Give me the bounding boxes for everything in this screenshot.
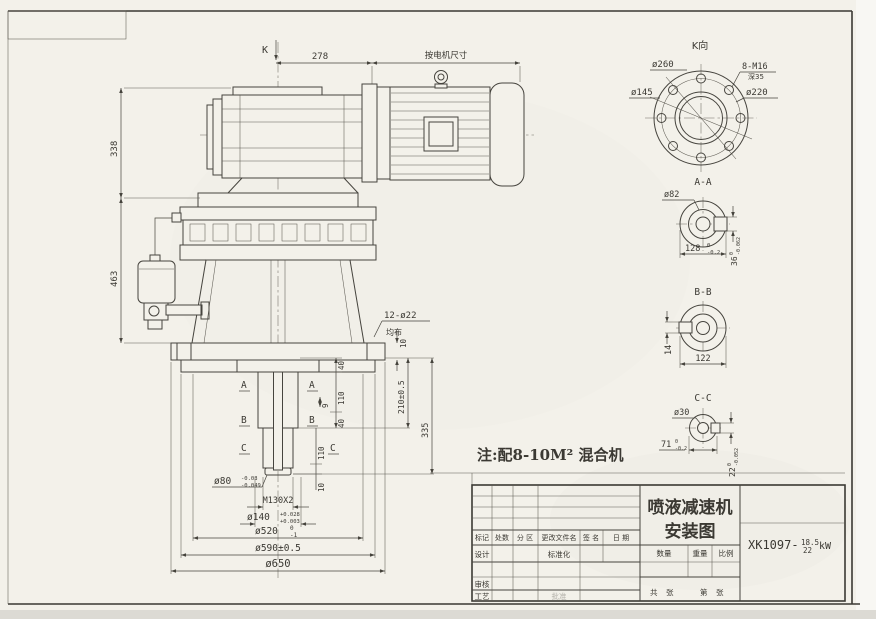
bb-keyway — [679, 322, 692, 333]
k-bolt-spec: 8-M16 — [742, 62, 768, 72]
chain-9: 9 — [321, 403, 330, 408]
motor-flange — [377, 87, 390, 179]
aa-title: A-A — [694, 177, 711, 188]
k-dia-bolt-circle: ø220 — [746, 88, 768, 98]
weight-label: 重量 — [693, 549, 708, 558]
coupling-flange — [362, 84, 377, 182]
cc-key-tol-lo: -0.052 — [734, 448, 740, 466]
aa-key-tol-hi: 0 — [729, 252, 735, 255]
chain-110a: 110 — [337, 391, 346, 405]
cc-title: C-C — [694, 393, 711, 404]
section-a-right: A — [309, 380, 315, 391]
aa-width: 128 — [685, 244, 700, 254]
q​ty-label: 数量 — [657, 548, 672, 558]
sheets-b-label: 张 — [716, 588, 724, 597]
col-sign: 签 名 — [583, 533, 599, 542]
section-a-left: A — [241, 380, 247, 391]
drawing-svg: K 278 按电机尺寸 — [0, 0, 876, 619]
cc-width-tol-hi: 0 — [675, 439, 678, 445]
view-k-title: K向 — [692, 39, 709, 52]
k-bolt-depth: 深35 — [748, 72, 764, 81]
holes-spec: 12-ø22 — [384, 311, 417, 321]
shaft-dia: ø80 — [214, 476, 231, 487]
cc-key-tol-hi: 0 — [727, 463, 733, 466]
aa-keyway — [714, 217, 727, 231]
drawing-title-line2: 安装图 — [665, 521, 716, 542]
support-arm — [166, 305, 202, 315]
dwg-no-denom: 22 — [803, 546, 812, 555]
section-b-right: B — [309, 415, 315, 426]
motor — [390, 71, 524, 187]
k-dia-pilot: ø145 — [631, 88, 653, 98]
col-date: 日 期 — [613, 534, 629, 542]
base-flange — [171, 343, 385, 372]
drawing-title-line1: 喷液减速机 — [648, 497, 733, 518]
k-dia-outer: ø260 — [652, 60, 674, 70]
dwg-no-unit: kW — [819, 541, 832, 552]
aa-key: 36 — [730, 256, 739, 266]
motor-end-cap — [490, 83, 524, 186]
eyebolt-icon — [435, 71, 448, 84]
dia-650: ø650 — [265, 558, 290, 570]
col-zone: 分 区 — [517, 533, 533, 542]
aa-width-tol-lo: -0.2 — [707, 250, 720, 256]
eyebolt-base — [435, 84, 447, 88]
section-b-left: B — [241, 415, 247, 426]
col-count: 处数 — [495, 533, 509, 542]
oil-pot — [138, 261, 175, 303]
row-check: 审核 — [475, 579, 490, 589]
gear-housing — [207, 87, 362, 178]
plate-thickness: 10 — [399, 338, 408, 348]
bore-dia: ø140 — [247, 512, 270, 523]
bb-width: 122 — [695, 354, 710, 364]
cc-width-tol-lo: -0.2 — [675, 446, 687, 452]
col-mark: 标记 — [475, 533, 489, 542]
dim-335: 335 — [421, 423, 431, 438]
aa-key-tol-lo: -0.062 — [736, 237, 742, 255]
dia-590: ø590±0.5 — [255, 543, 301, 554]
turntable-drum — [180, 207, 376, 260]
sheets-ordinal-label: 第 — [700, 587, 708, 597]
scale-label: 比例 — [719, 548, 734, 558]
shaft-collar — [237, 360, 319, 372]
drawing-note: 注:配8-10M² 混合机 — [477, 446, 623, 464]
section-c-right: C — [330, 443, 336, 454]
bb-key-width: 14 — [664, 345, 674, 355]
dim-463: 463 — [110, 271, 120, 287]
shaft-dia-tol-lo: -0.049 — [241, 483, 261, 489]
dim-278: 278 — [312, 52, 328, 62]
thread-spec: M130X2 — [263, 496, 294, 506]
sheets-a-label: 张 — [666, 588, 674, 597]
bore-tol-hi: +0.028 — [280, 512, 300, 518]
dim-338: 338 — [110, 141, 120, 157]
chain-110b: 110 — [317, 446, 326, 460]
chain-40a: 40 — [337, 360, 346, 370]
dim-210: 210±0.5 — [397, 380, 406, 414]
sheets-total-label: 共 — [650, 588, 658, 597]
cc-dia-bore: ø30 — [674, 408, 689, 418]
aa-width-tol-hi: 0 — [707, 243, 710, 249]
pipe-fitting — [172, 213, 181, 222]
dia-520: ø520 — [255, 526, 278, 537]
aa-dia-bore: ø82 — [664, 190, 679, 200]
col-file: 更改文件名 — [542, 533, 577, 542]
k-view-label: K — [262, 45, 268, 56]
dia-520-tol-lo: -1 — [290, 532, 298, 539]
section-c-left: C — [241, 443, 247, 454]
bb-title: B-B — [694, 287, 711, 298]
cc-keyway — [711, 423, 720, 433]
dwg-no-prefix: XK1097- — [748, 538, 799, 552]
cc-width: 71 — [661, 440, 671, 450]
row-approve: 批准 — [552, 591, 567, 601]
holes-layout: 均布 — [386, 327, 402, 337]
row-process: 工艺 — [475, 592, 490, 601]
motor-dim-note: 按电机尺寸 — [425, 50, 468, 61]
dia-520-tol-hi: 0 — [290, 525, 294, 532]
shaft-bore — [274, 372, 283, 470]
cc-key: 22 — [728, 467, 737, 477]
bracket-foot — [148, 320, 162, 329]
chain-10: 10 — [317, 482, 326, 492]
scanned-drawing-sheet: K 278 按电机尺寸 — [0, 0, 876, 619]
row-standard: 标准化 — [548, 549, 571, 559]
row-design: 设计 — [475, 549, 490, 559]
chain-40b: 40 — [337, 418, 346, 428]
